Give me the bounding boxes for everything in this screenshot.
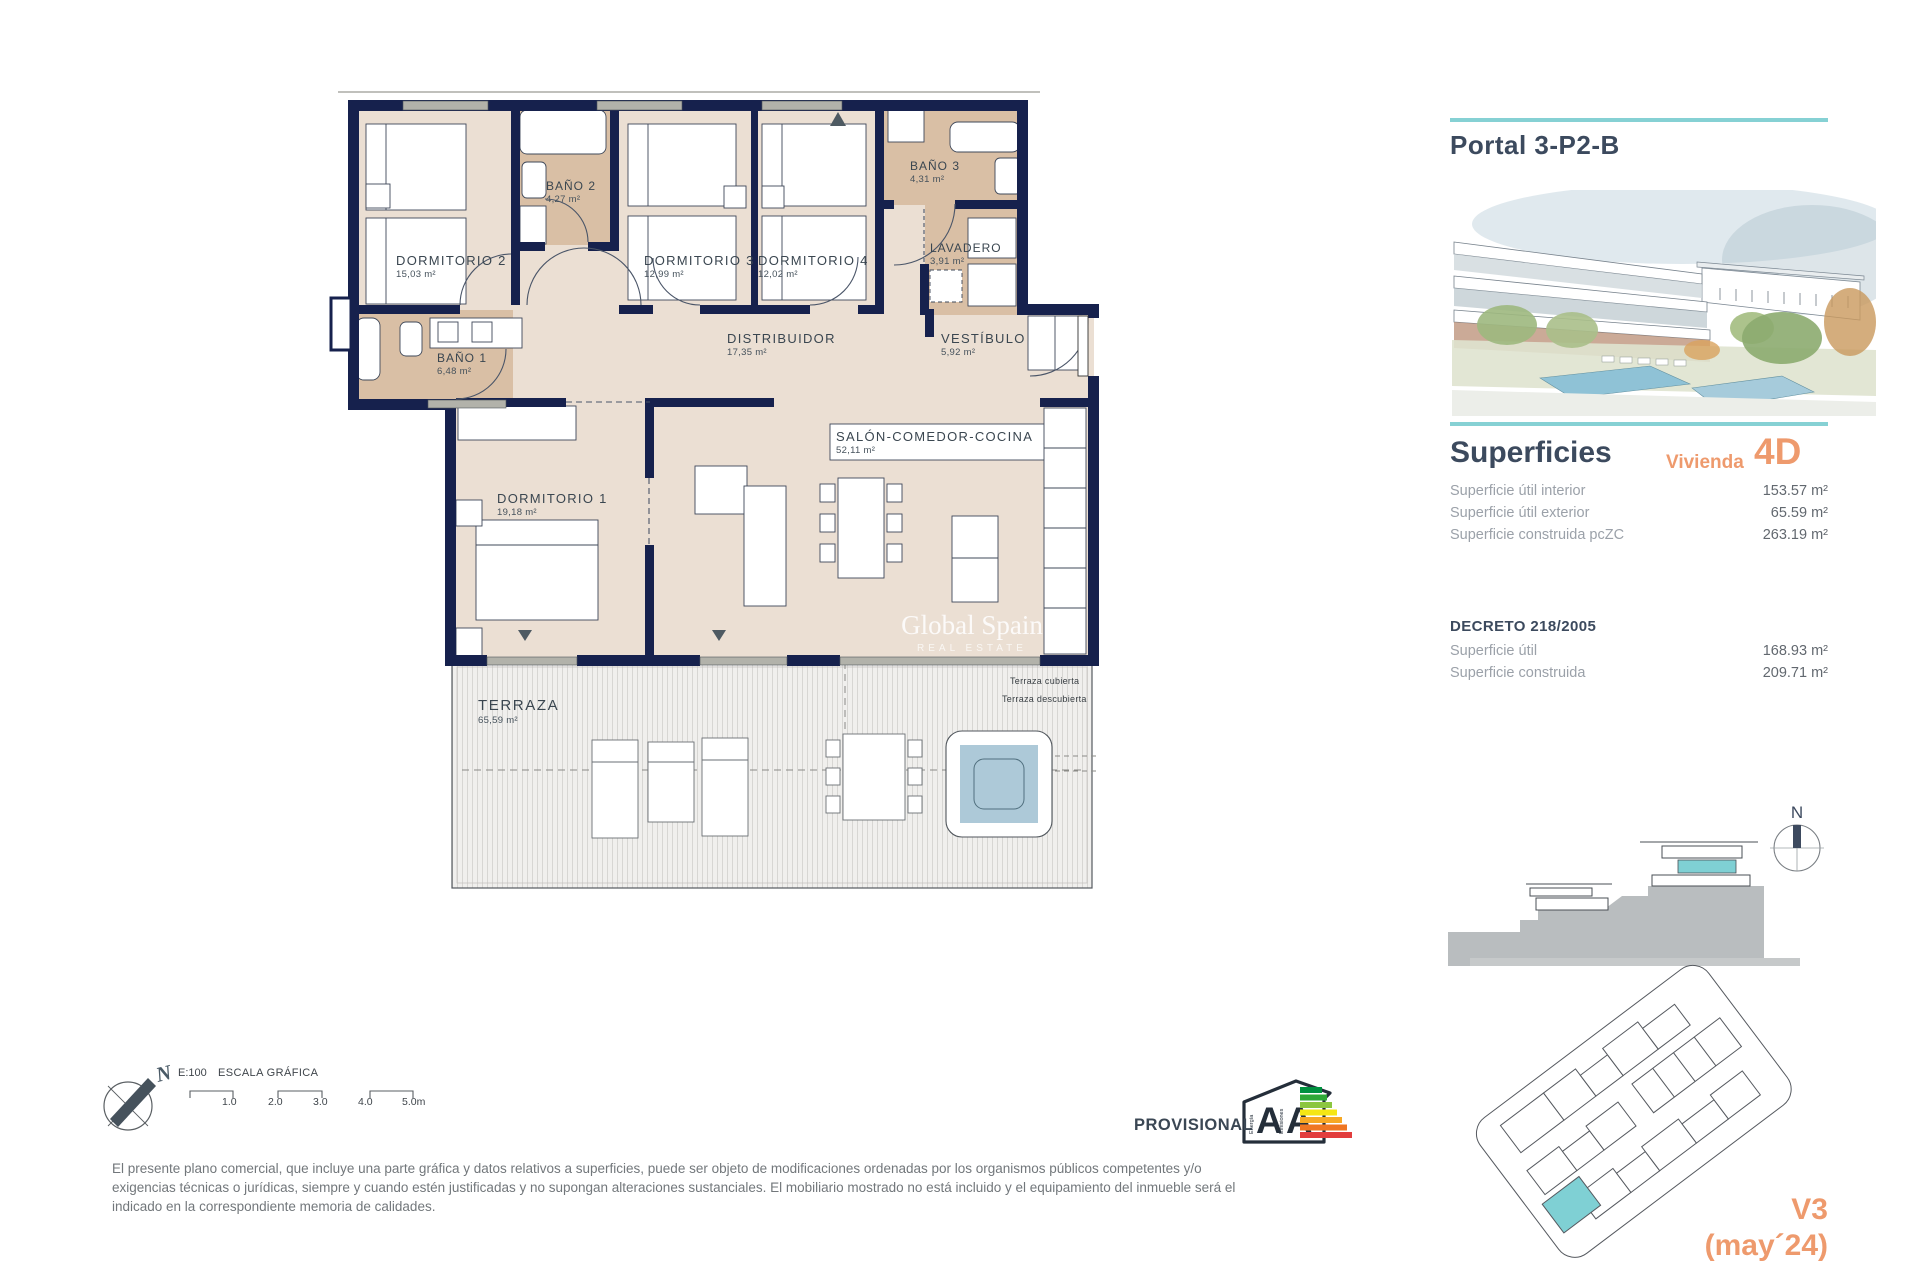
room-label-bano-1: BAÑO 1 6,48 m² xyxy=(437,352,487,377)
plan-sheet: N Energía Emisiones A A xyxy=(0,0,1920,1280)
scale-title: ESCALA GRÁFICA xyxy=(218,1067,318,1079)
table-row: Superficie útil exterior 65.59 m² xyxy=(1450,502,1828,524)
decreto-heading: DECRETO 218/2005 xyxy=(1450,618,1596,635)
terrace-dining xyxy=(826,734,922,820)
section-diagram: N xyxy=(1448,803,1824,966)
room-label-terraza: TERRAZA 65,59 m² xyxy=(478,698,559,726)
plunge-pool xyxy=(946,731,1052,837)
provisional-label: PROVISIONAL xyxy=(1134,1116,1253,1135)
decreto-table: Superficie útil 168.93 m² Superficie con… xyxy=(1450,640,1828,684)
scale-tick: 4.0 xyxy=(358,1096,373,1108)
highlighted-floor xyxy=(1678,860,1736,873)
section-compass-icon: N xyxy=(1770,803,1824,871)
wall-nook xyxy=(331,298,351,350)
room-label-salon: SALÓN-COMEDOR-COCINA 52,11 m² xyxy=(836,430,1033,456)
room-label-bano-2: BAÑO 2 4,27 m² xyxy=(546,180,596,205)
superficies-heading: Superficies xyxy=(1450,436,1612,470)
watermark-brand: Global Spain xyxy=(877,610,1067,641)
energy-letter: A xyxy=(1256,1100,1283,1141)
section-compass-n-label: N xyxy=(1791,803,1803,822)
room-label-distribuidor: DISTRIBUIDOR 17,35 m² xyxy=(727,332,836,358)
terrace-uncovered-note: Terraza descubierta xyxy=(1002,694,1087,704)
compass-icon: N xyxy=(104,1060,175,1130)
room-label-dormitorio-3: DORMITORIO 3 12,99 m² xyxy=(644,254,755,280)
building-rendering xyxy=(1452,184,1902,416)
scale-tick: 2.0 xyxy=(268,1096,283,1108)
room-label-vestibulo: VESTÍBULO 5,92 m² xyxy=(941,332,1026,358)
scale-tick: 1.0 xyxy=(222,1096,237,1108)
panel-top-rule xyxy=(1450,118,1828,122)
room-label-dormitorio-1: DORMITORIO 1 19,18 m² xyxy=(497,492,608,518)
version-stamp: V3 (may´24) xyxy=(1620,1192,1828,1264)
room-label-lavadero: LAVADERO 3,91 m² xyxy=(930,242,1002,267)
watermark-tagline: REAL ESTATE xyxy=(877,643,1067,654)
scale-ratio: E:100 xyxy=(178,1067,207,1079)
superficies-table: Superficie útil interior 153.57 m² Super… xyxy=(1450,480,1828,546)
scale-tick: 5.0m xyxy=(402,1096,425,1108)
table-row: Superficie construida pcZC 263.19 m² xyxy=(1450,524,1828,546)
energy-bars xyxy=(1300,1087,1352,1138)
legal-disclaimer: El presente plano comercial, que incluye… xyxy=(112,1159,1235,1216)
vivienda-code: 4D xyxy=(1754,431,1801,473)
entrance-door-leaf xyxy=(1078,316,1088,376)
terrace-covered-note: Terraza cubierta xyxy=(1010,676,1079,686)
room-label-dormitorio-4: DORMITORIO 4 12,02 m² xyxy=(758,254,869,280)
compass-n-label: N xyxy=(152,1060,174,1087)
watermark: Global Spain REAL ESTATE xyxy=(877,610,1067,654)
table-row: Superficie útil interior 153.57 m² xyxy=(1450,480,1828,502)
room-label-dormitorio-2: DORMITORIO 2 15,03 m² xyxy=(396,254,507,280)
page-title: Portal 3-P2-B xyxy=(1450,130,1620,161)
vivienda-label: Vivienda xyxy=(1666,452,1744,474)
panel-mid-rule xyxy=(1450,422,1828,426)
table-row: Superficie útil 168.93 m² xyxy=(1450,640,1828,662)
table-row: Superficie construida 209.71 m² xyxy=(1450,662,1828,684)
scale-tick: 3.0 xyxy=(313,1096,328,1108)
room-label-bano-3: BAÑO 3 4,31 m² xyxy=(910,160,960,185)
energy-certificate-icon: Energía Emisiones A A xyxy=(1244,1081,1352,1142)
